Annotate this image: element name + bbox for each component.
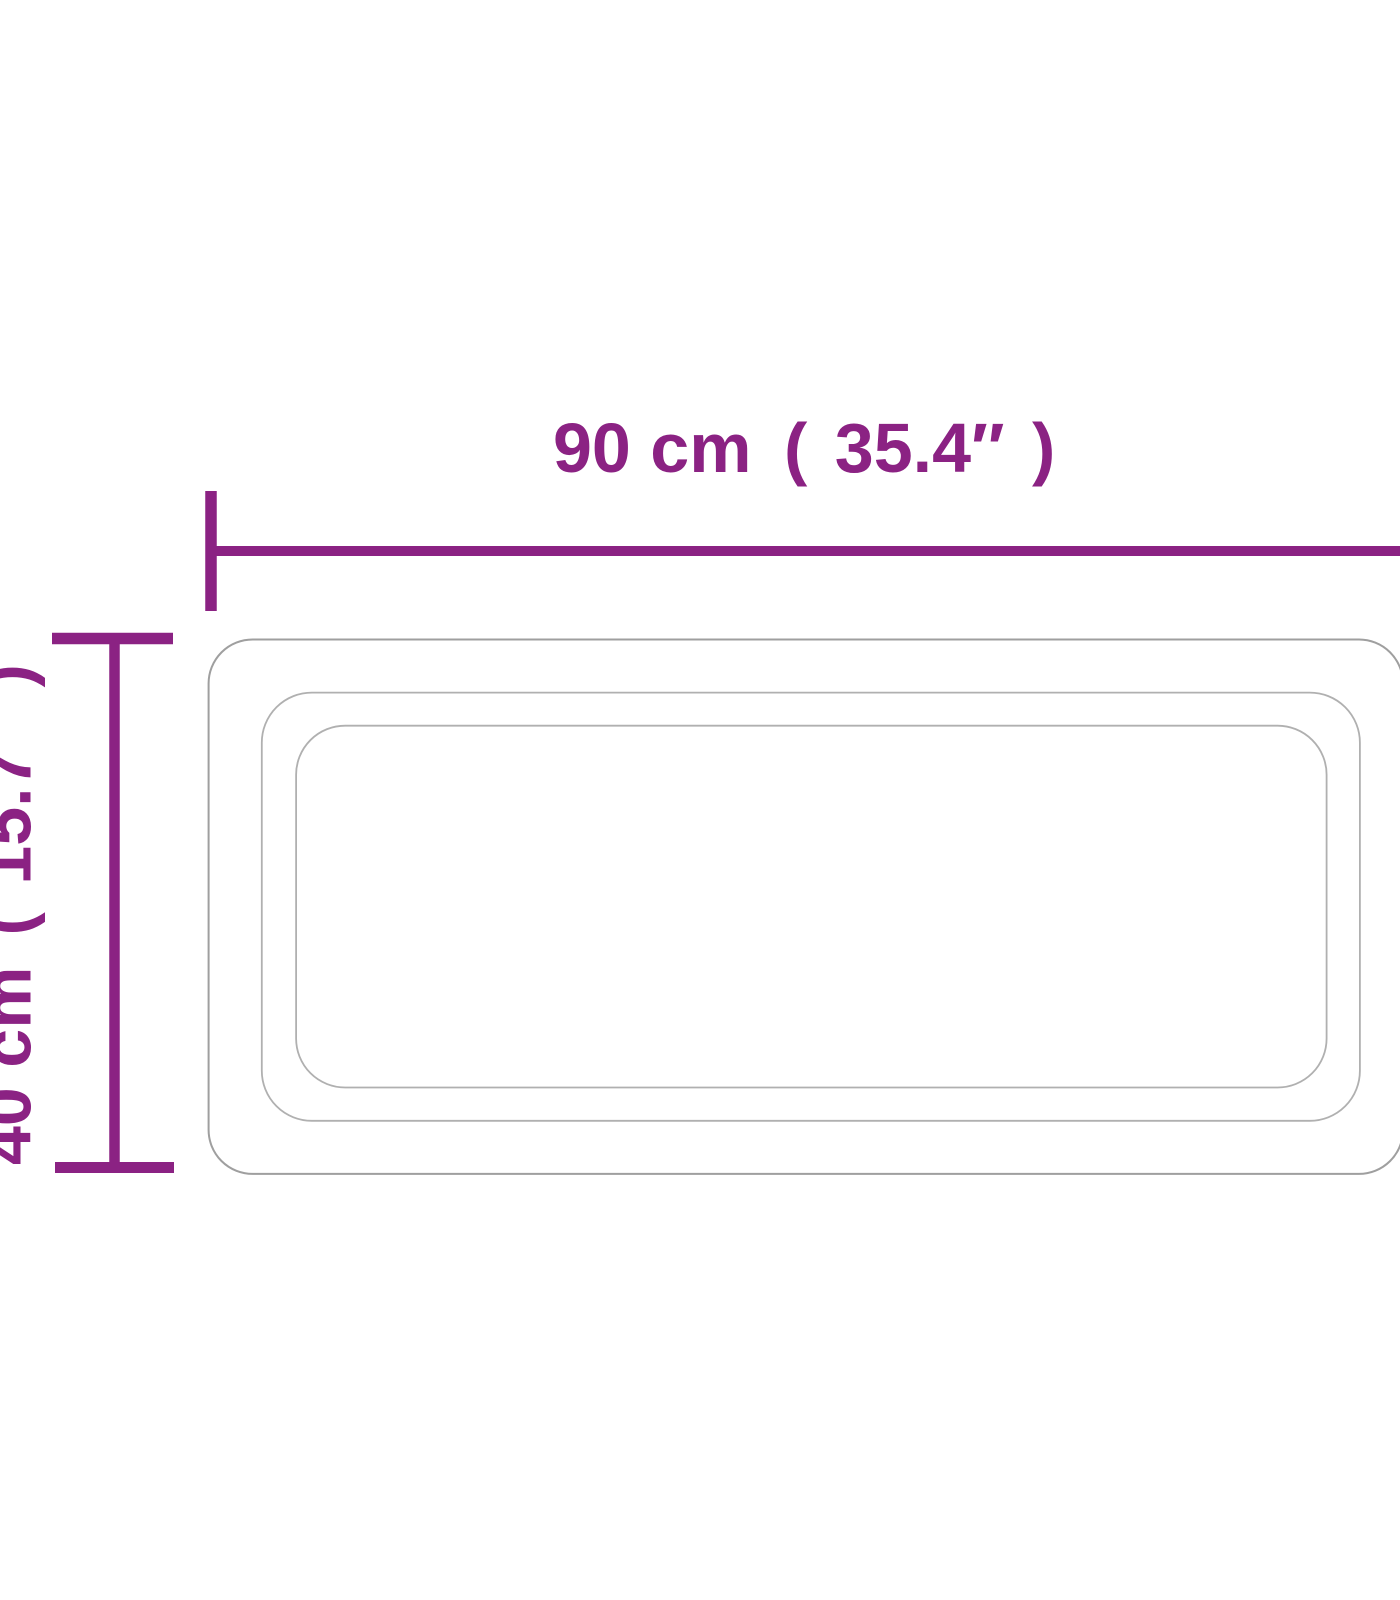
svg-text:40 cm: 40 cm bbox=[0, 967, 46, 1165]
svg-text:( 15.7″ ): ( 15.7″ ) bbox=[0, 664, 46, 935]
svg-text:90 cm: 90 cm bbox=[553, 409, 751, 487]
svg-text:( 35.4″ ): ( 35.4″ ) bbox=[784, 409, 1055, 487]
